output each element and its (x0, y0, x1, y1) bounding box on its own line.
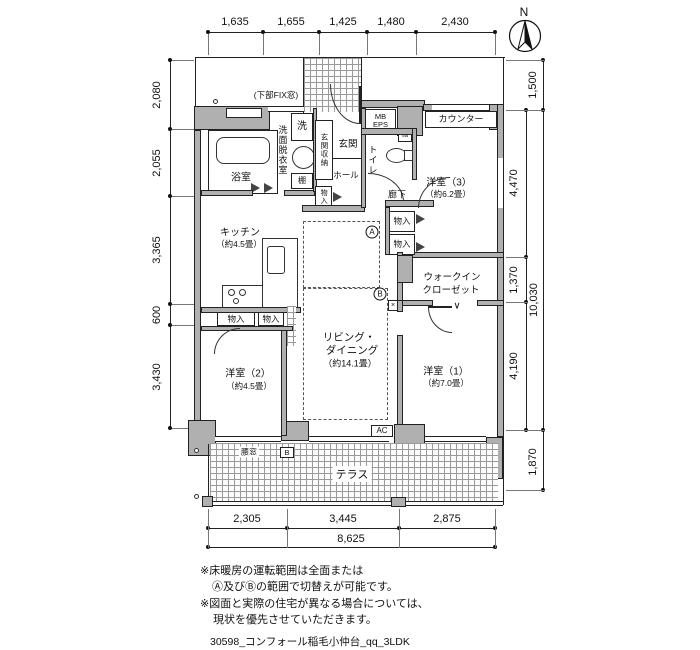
stove-burner-icon (233, 298, 239, 304)
ext-line (172, 325, 194, 326)
wall-left (194, 130, 201, 422)
dim-line-top (208, 32, 495, 33)
outline-left-upper (195, 57, 196, 107)
note-line-1: ※床暖房の運転範囲は全面または (200, 562, 363, 578)
plan-caption: 30598_コンフォール稲毛小仲台_qq_3LDK (210, 634, 410, 649)
wall-room2-top (201, 326, 293, 331)
closet-door-flag (333, 192, 342, 202)
ext-line (506, 60, 545, 61)
ext-line (172, 129, 194, 130)
closet-door-flag (416, 214, 425, 224)
kitchen-closet-2: 物入 (258, 312, 284, 326)
room-label-kitchen: キッチン (220, 224, 260, 239)
dim-left-4: 600 (151, 306, 163, 324)
ext-line (319, 34, 320, 55)
dim-right-4190: 4,190 (508, 352, 520, 380)
bath-door-fold (264, 183, 273, 193)
dim-top-4: 1,480 (377, 16, 405, 28)
ext-line (208, 509, 209, 548)
wall-right (497, 104, 504, 437)
ext-line (172, 304, 194, 305)
vent-mark (213, 99, 218, 104)
dim-line-bottom-total (208, 547, 495, 548)
washer-box: 洗 (291, 113, 313, 141)
dim-top-5: 2,430 (441, 16, 469, 28)
wall-toilet-top (361, 128, 414, 135)
wall-hall-bottom (302, 205, 365, 212)
dim-top-2: 1,655 (277, 16, 305, 28)
counter-window (432, 104, 490, 111)
vent-mark (194, 494, 199, 499)
ext-line (416, 34, 417, 55)
wall-wic-bottom-right (477, 300, 504, 306)
room3-side-window (497, 158, 504, 208)
note-line-4: 現状を優先させていただきます。 (213, 611, 377, 627)
ext-line (495, 509, 496, 548)
shelf-box: 棚 (291, 173, 313, 189)
ext-line (495, 34, 496, 55)
closet-door-flag (416, 242, 425, 252)
wall-washroom-bottom (284, 190, 315, 196)
wall-room1-left (397, 335, 403, 436)
dim-right-10030: 10,030 (528, 283, 540, 317)
dim-right-1370: 1,370 (508, 266, 520, 294)
floor-plan-canvas: N 1,635 1,655 1,425 1,480 2,430 2,080 2,… (0, 0, 700, 650)
dim-right-4470: 4,470 (508, 169, 520, 197)
room-label-room2: 洋室（2） (225, 365, 271, 380)
ext-line (367, 34, 368, 55)
kitchen-sink (267, 246, 285, 274)
wall-bath-bottom (201, 190, 253, 196)
dim-right-1500: 1,500 (527, 71, 539, 99)
room-label-hall: ホール (333, 169, 359, 181)
room-label-wic-1: ウォークイン (423, 269, 480, 283)
toilet-tank-icon (404, 150, 413, 161)
heat-zone-a-mark: A (366, 226, 379, 239)
wall-notch (226, 108, 262, 118)
stove-burner-icon (239, 289, 246, 296)
wic-fold-door-mark: ∨ (453, 301, 460, 312)
note-line-3: ※図面と実際の住宅が異なる場合については、 (200, 595, 429, 611)
wall-room2-right (281, 330, 287, 436)
ext-line (506, 257, 528, 258)
room-label-living-2: ダイニング (326, 343, 379, 358)
room-size-room2: （約4.5畳） (226, 380, 272, 392)
room-label-toilet: トイレ (367, 145, 380, 175)
dim-line-left (170, 60, 171, 428)
room-label-terrace: テラス (333, 466, 372, 482)
ext-line (506, 302, 528, 303)
dim-bottom-2: 3,445 (329, 513, 357, 525)
ext-line (172, 60, 194, 61)
room2-window (215, 436, 281, 442)
north-compass-icon (506, 17, 544, 55)
vent-mark (194, 448, 199, 453)
dim-line-right-outer (543, 60, 544, 490)
room-label-washroom: 洗面脱衣室 (277, 125, 290, 175)
dim-top-3: 1,425 (329, 16, 357, 28)
room2-door-arc (214, 328, 240, 354)
terrace-post (391, 497, 406, 507)
counter-box: カウンター (425, 111, 497, 128)
waist-window-label: 腰窓 (239, 447, 259, 458)
wall-room1-left-stub (397, 300, 403, 312)
stove-burner-icon (228, 289, 235, 296)
ext-line (506, 430, 545, 431)
room-label-bath: 浴室 (231, 169, 251, 184)
terrace-post (202, 496, 213, 507)
dim-line-right-inner (526, 110, 527, 430)
bathtub (216, 137, 270, 164)
ext-line (208, 34, 209, 55)
room-size-living: （約14.1畳） (323, 357, 377, 370)
note-line-2: Ⓐ及びⒷの範囲で切替えが可能です。 (212, 578, 398, 594)
heat-zone-b-mark: B (374, 288, 387, 301)
ac-box-1: AC (371, 425, 393, 437)
closet-box-1: 物入 (389, 211, 415, 232)
ext-line (506, 490, 545, 491)
room-label-corridor: 廊下 (388, 188, 406, 201)
fix-window (268, 106, 304, 112)
entrance-step-line (333, 158, 362, 159)
room-label-room1: 洋室（1） (423, 363, 469, 378)
ext-line (506, 110, 545, 111)
dim-bottom-total: 8,625 (337, 533, 365, 545)
porch-right-line (361, 58, 362, 102)
wall-room3-bottom (412, 252, 504, 258)
entrance-storage-box: 玄関収納 (315, 120, 333, 180)
closet-label: 物入 (320, 189, 327, 205)
sink-bowl-icon (292, 146, 315, 169)
pillar-wic (397, 255, 413, 283)
dim-left-5: 3,430 (151, 363, 163, 391)
wall-hall-toilet (361, 108, 366, 208)
room-size-kitchen: （約4.5畳） (216, 238, 262, 250)
dim-line-bottom (208, 528, 495, 529)
dim-right-1870: 1,870 (527, 448, 539, 476)
b-mark-box: B (280, 447, 294, 458)
room3-door-arc (418, 177, 450, 208)
ext-line (263, 34, 264, 55)
entrance-door-arc (330, 84, 360, 124)
room-label-wic-2: クローゼット (422, 282, 479, 296)
dim-left-2: 2,055 (151, 149, 163, 177)
dim-left-3: 3,365 (151, 236, 163, 264)
ext-line (287, 509, 288, 548)
terrace-edge (207, 501, 503, 506)
kitchen-closet-1: 物入 (217, 312, 255, 326)
dim-left-1: 2,080 (151, 81, 163, 109)
dim-top-1: 1,635 (221, 16, 249, 28)
room1-door-arc (428, 307, 452, 333)
entrance-storage-label: 玄関収納 (320, 133, 328, 167)
ext-line (399, 509, 400, 548)
ext-line (172, 196, 194, 197)
room-label-entrance: 玄関 (338, 136, 357, 150)
fix-window-label: (下部FIX窓) (254, 89, 298, 101)
room-size-room1: （約7.0畳） (423, 377, 469, 389)
dim-bottom-1: 2,305 (233, 513, 261, 525)
dim-bottom-3: 2,875 (433, 513, 461, 525)
